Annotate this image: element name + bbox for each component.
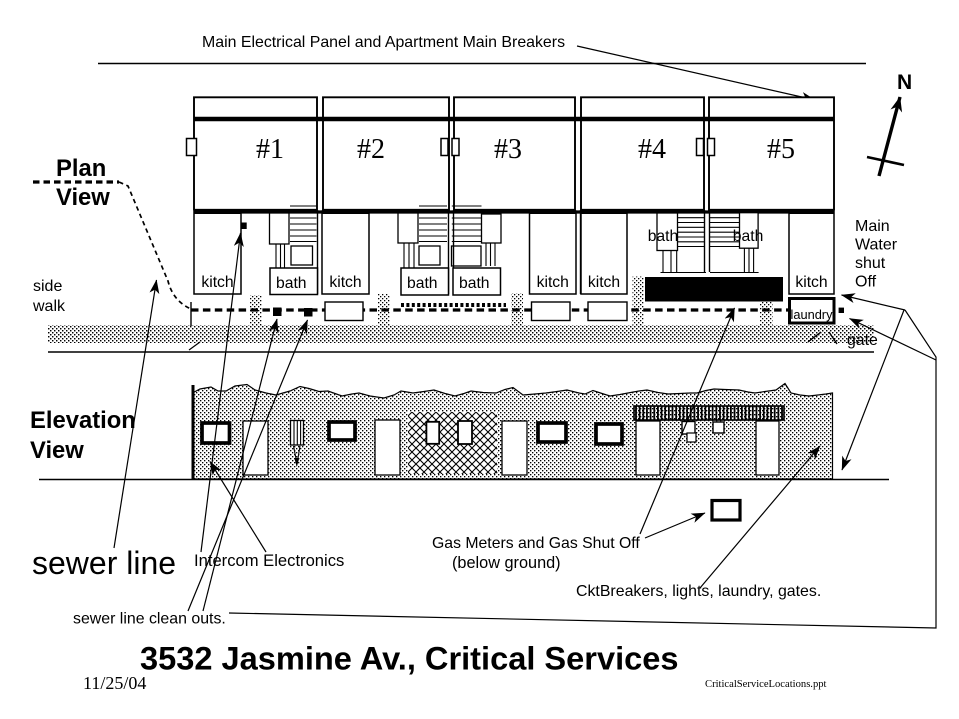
svg-text:View: View [30, 437, 84, 464]
svg-text:11/25/04: 11/25/04 [83, 673, 146, 693]
svg-text:#4: #4 [638, 134, 666, 165]
svg-text:sewer line clean outs.: sewer line clean outs. [73, 611, 226, 628]
svg-text:bath: bath [407, 275, 438, 292]
svg-text:#5: #5 [767, 134, 795, 165]
svg-text:CktBreakers, lights, laundry,: CktBreakers, lights, laundry, gates. [576, 583, 821, 600]
svg-text:Elevation: Elevation [30, 407, 136, 434]
svg-text:Plan: Plan [56, 155, 106, 182]
svg-text:Main: Main [855, 218, 890, 235]
svg-text:kitch: kitch [795, 274, 827, 291]
svg-text:N: N [897, 71, 912, 94]
svg-text:side: side [33, 278, 62, 295]
svg-text:View: View [56, 184, 110, 211]
svg-text:Off: Off [855, 274, 877, 291]
svg-text:kitch: kitch [201, 274, 233, 291]
svg-text:Water: Water [855, 237, 898, 254]
svg-text:#2: #2 [357, 134, 385, 165]
svg-text:(below ground): (below ground) [452, 554, 561, 572]
svg-text:shut: shut [855, 255, 886, 272]
svg-text:kitch: kitch [329, 274, 361, 291]
svg-text:kitch: kitch [537, 274, 569, 291]
svg-text:Gas Meters and Gas Shut Off: Gas Meters and Gas Shut Off [432, 535, 640, 552]
svg-text:gate: gate [847, 332, 878, 349]
svg-text:Main Electrical Panel and Apar: Main Electrical Panel and Apartment Main… [202, 34, 565, 51]
svg-text:bath: bath [459, 275, 490, 292]
svg-text:bath: bath [276, 275, 307, 292]
svg-text:bath: bath [733, 228, 764, 245]
svg-text:3532 Jasmine Av., Critical Ser: 3532 Jasmine Av., Critical Services [140, 640, 678, 677]
svg-text:#1: #1 [256, 134, 284, 165]
svg-text:kitch: kitch [588, 274, 620, 291]
svg-text:#3: #3 [494, 134, 522, 165]
svg-text:Intercom Electronics: Intercom Electronics [194, 551, 344, 570]
svg-text:walk: walk [32, 298, 66, 315]
svg-text:laundry: laundry [791, 307, 834, 322]
svg-text:bath: bath [648, 228, 679, 245]
svg-text:sewer line: sewer line [32, 545, 176, 581]
svg-text:CriticalServiceLocations.ppt: CriticalServiceLocations.ppt [705, 679, 827, 690]
